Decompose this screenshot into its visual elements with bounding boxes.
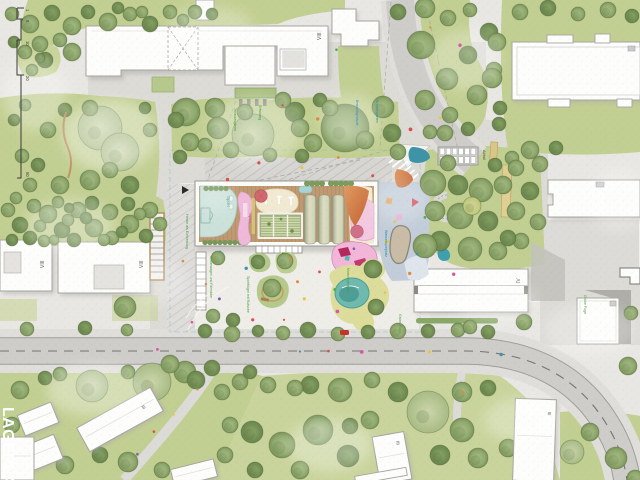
svg-text:Grüne Fuge: Grüne Fuge <box>398 314 402 333</box>
svg-text:Wasserspielplatz: Wasserspielplatz <box>384 230 388 257</box>
svg-text:Grüne Fuge: Grüne Fuge <box>583 295 587 314</box>
svg-text:Krippengarten: Krippengarten <box>375 100 379 123</box>
svg-text:Kinderwagen und Fahrräder: Kinderwagen und Fahrräder <box>209 256 213 299</box>
svg-text:Matschspielplatz: Matschspielplatz <box>346 268 350 293</box>
svg-text:Erholung: Erholung <box>258 105 262 120</box>
svg-text:10: 10 <box>25 41 30 46</box>
svg-text:Spielhügel mit Rutsche: Spielhügel mit Rutsche <box>246 276 250 313</box>
svg-text:50: 50 <box>25 172 30 177</box>
svg-text:Bestandsgebäude: Bestandsgebäude <box>355 100 359 126</box>
svg-text:LAGEPLAN: LAGEPLAN <box>0 407 16 480</box>
svg-text:Terrassengärten: Terrassengärten <box>233 108 237 131</box>
svg-text:Hecke als Einfriedung: Hecke als Einfriedung <box>185 214 189 249</box>
svg-text:20: 20 <box>25 76 30 81</box>
